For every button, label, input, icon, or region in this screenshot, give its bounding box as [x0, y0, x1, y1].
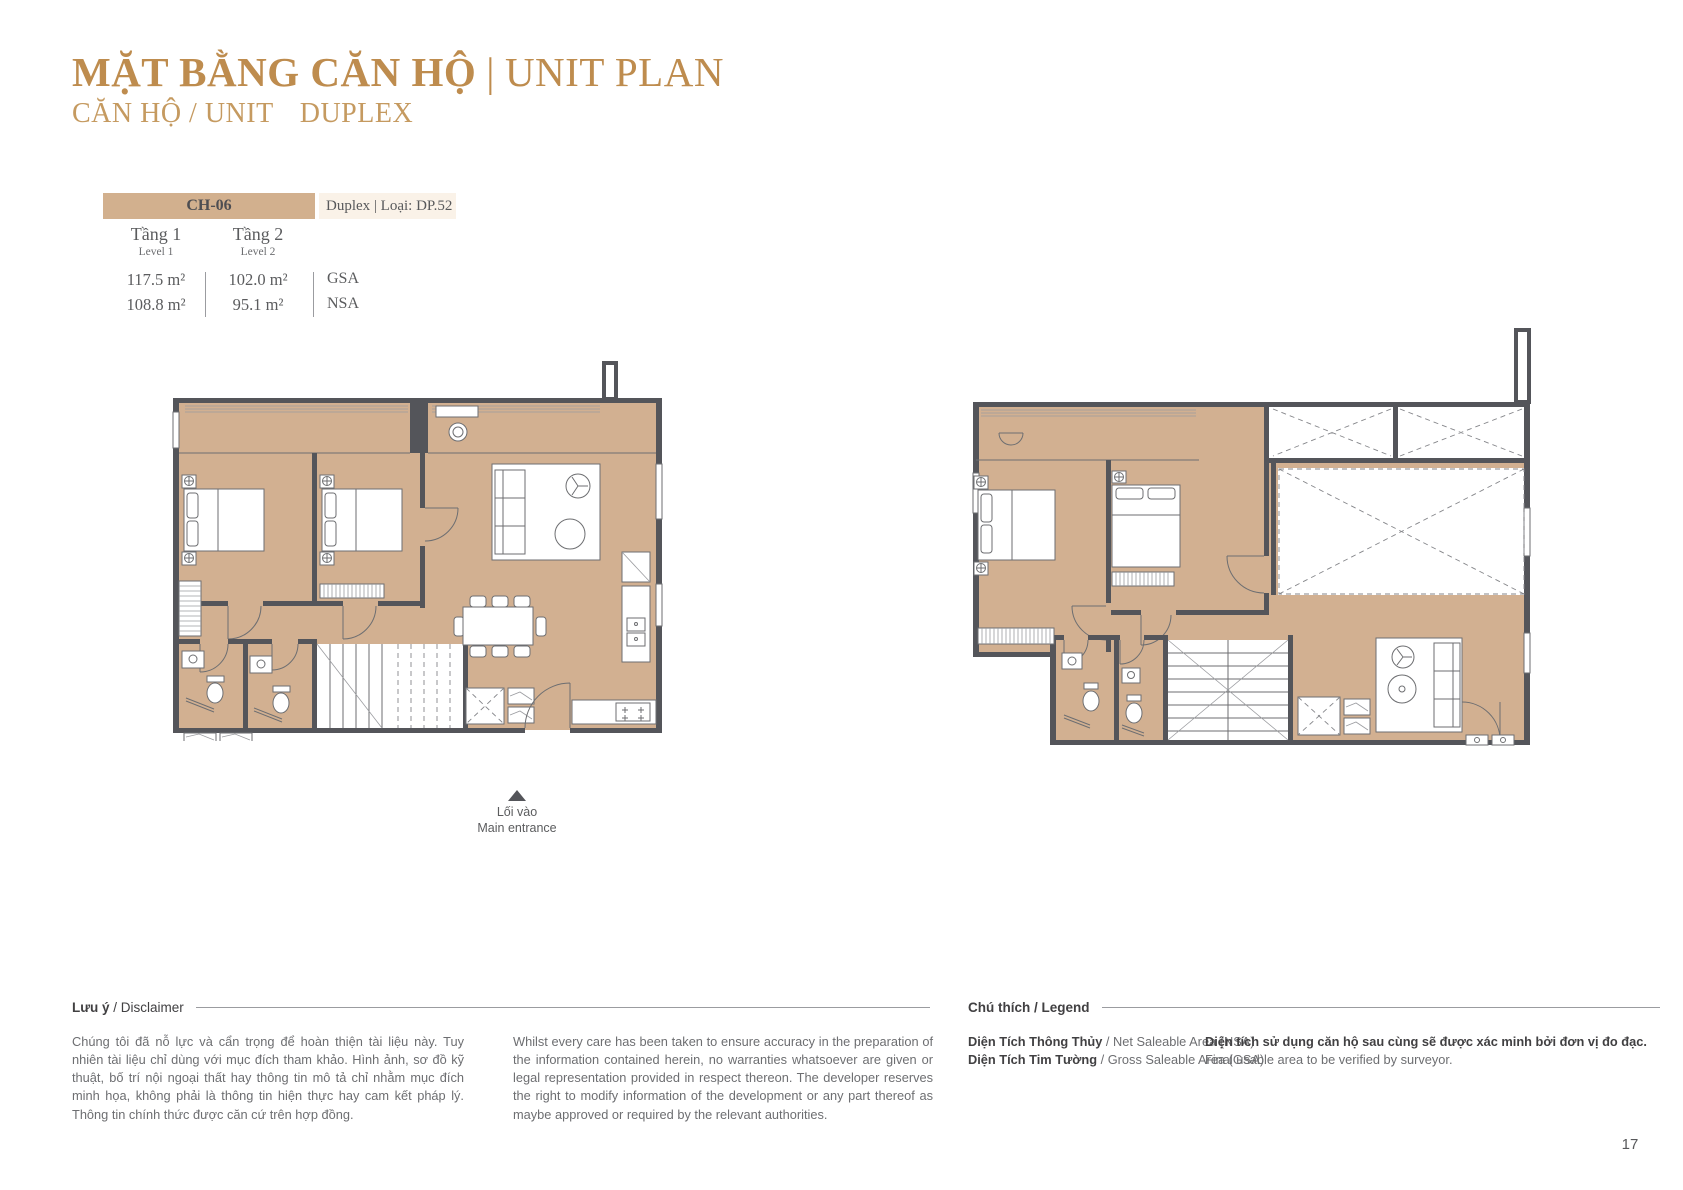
legend-item-gsa: Diện Tích Tim Tường / Gross Saleable Are…: [968, 1051, 1218, 1069]
brochure-page: MẶT BẰNG CĂN HỘ|UNIT PLAN CĂN HỘ / UNITD…: [0, 0, 1683, 1190]
level-1-label-en: Level 1: [101, 246, 211, 258]
title-vietnamese: MẶT BẰNG CĂN HỘ: [72, 49, 476, 95]
disclaimer-text-vietnamese: Chúng tôi đã nỗ lực và cẩn trọng để hoàn…: [72, 1033, 464, 1124]
level-2-label-en: Level 2: [203, 246, 313, 258]
table-divider-1: [205, 272, 206, 317]
entrance-marker: Lối vào Main entrance: [462, 790, 572, 836]
legend-heading: Chú thích / Legend: [968, 1000, 1660, 1015]
title-english: UNIT PLAN: [505, 49, 724, 95]
page-title: MẶT BẰNG CĂN HỘ|UNIT PLAN: [72, 48, 724, 96]
disclaimer-text-english: Whilst every care has been taken to ensu…: [513, 1033, 933, 1124]
legend-items: Diện Tích Thông Thủy / Net Saleable Area…: [968, 1033, 1218, 1069]
page-number: 17: [1600, 1136, 1660, 1153]
subtitle-value: DUPLEX: [300, 98, 413, 129]
legend-note-en: Final usable area to be verified by surv…: [1205, 1052, 1453, 1067]
disclaimer-heading-vi: Lưu ý: [72, 1000, 110, 1015]
gsa-label: GSA: [327, 270, 359, 288]
legend-note-vi: Diện tích sử dụng căn hộ sau cùng sẽ đượ…: [1205, 1033, 1665, 1051]
title-separator: |: [486, 49, 495, 95]
level-2-nsa-value: 95.1 m²: [203, 295, 313, 315]
page-subtitle: CĂN HỘ / UNITDUPLEX: [72, 98, 413, 130]
disclaimer-heading: Lưu ý / Disclaimer: [72, 1000, 930, 1015]
legend-item-nsa: Diện Tích Thông Thủy / Net Saleable Area…: [968, 1033, 1218, 1051]
legend-heading-label: Chú thích / Legend: [968, 1000, 1090, 1015]
disclaimer-rule: [196, 1007, 930, 1008]
legend-note: Diện tích sử dụng căn hộ sau cùng sẽ đượ…: [1205, 1033, 1665, 1069]
entrance-label-en: Main entrance: [462, 821, 572, 837]
level-2-gsa-value: 102.0 m²: [203, 270, 313, 290]
level-2-label-vi: Tầng 2: [203, 224, 313, 245]
floor-plan-level-1: [170, 356, 665, 741]
level-2-header: Tầng 2 Level 2: [203, 224, 313, 258]
nsa-label: NSA: [327, 295, 359, 313]
subtitle-label: CĂN HỘ / UNIT: [72, 98, 274, 129]
level-1-gsa-value: 117.5 m²: [101, 270, 211, 290]
entrance-label-vi: Lối vào: [462, 805, 572, 821]
unit-code-cell: CH-06: [103, 193, 315, 219]
legend-rule: [1102, 1007, 1661, 1008]
entrance-arrow-icon: [508, 790, 526, 801]
level-1-label-vi: Tầng 1: [101, 224, 211, 245]
level-1-nsa-value: 108.8 m²: [101, 295, 211, 315]
disclaimer-heading-en: / Disclaimer: [110, 1000, 184, 1015]
level-1-header: Tầng 1 Level 1: [101, 224, 211, 258]
unit-type-cell: Duplex | Loại: DP.52: [319, 193, 456, 219]
table-divider-2: [313, 272, 314, 317]
floor-plan-level-2: [966, 323, 1543, 748]
